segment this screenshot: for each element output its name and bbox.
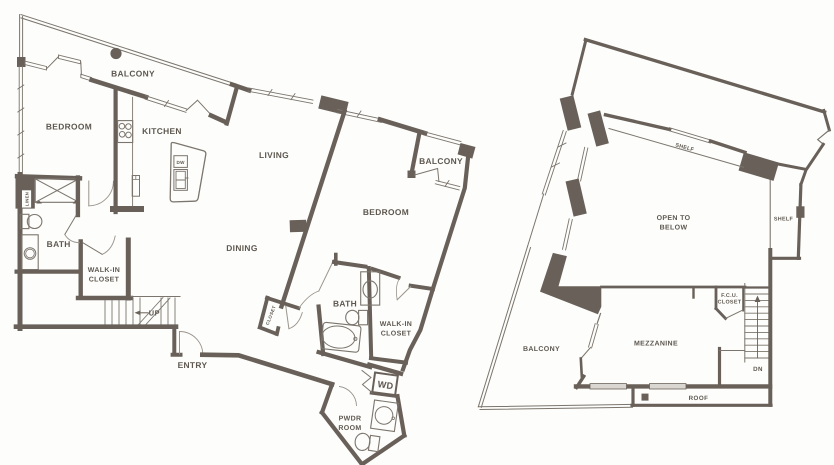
svg-text:BALCONY: BALCONY: [419, 156, 463, 166]
svg-text:ROOF: ROOF: [689, 395, 709, 402]
svg-text:WALK-IN: WALK-IN: [380, 321, 412, 328]
svg-text:ENTRY: ENTRY: [178, 360, 208, 370]
svg-text:LIVING: LIVING: [259, 150, 289, 160]
svg-text:CLOSET: CLOSET: [381, 331, 412, 338]
svg-text:BELOW: BELOW: [660, 225, 688, 232]
svg-text:DN: DN: [753, 366, 763, 373]
svg-text:CLOSET: CLOSET: [718, 300, 742, 306]
svg-text:PWDR: PWDR: [339, 416, 362, 423]
svg-text:ROOM: ROOM: [338, 425, 361, 432]
svg-text:BATH: BATH: [47, 239, 71, 249]
svg-text:DINING: DINING: [226, 243, 257, 253]
svg-text:UP: UP: [149, 308, 160, 317]
svg-text:BALCONY: BALCONY: [523, 346, 560, 353]
svg-text:BEDROOM: BEDROOM: [363, 207, 409, 217]
svg-text:MEZZANINE: MEZZANINE: [634, 341, 678, 348]
svg-text:OPEN TO: OPEN TO: [657, 215, 691, 222]
svg-text:KITCHEN: KITCHEN: [142, 126, 182, 136]
svg-text:WALK-IN: WALK-IN: [88, 267, 120, 274]
svg-text:SHELF: SHELF: [774, 217, 794, 223]
svg-text:F.C.U.: F.C.U.: [721, 293, 738, 299]
svg-text:CLOSET: CLOSET: [89, 277, 120, 284]
svg-text:BEDROOM: BEDROOM: [46, 122, 92, 132]
svg-text:LINEN: LINEN: [25, 192, 30, 206]
svg-text:BALCONY: BALCONY: [111, 69, 155, 79]
svg-text:DW: DW: [176, 160, 185, 165]
svg-text:BATH: BATH: [333, 299, 357, 309]
